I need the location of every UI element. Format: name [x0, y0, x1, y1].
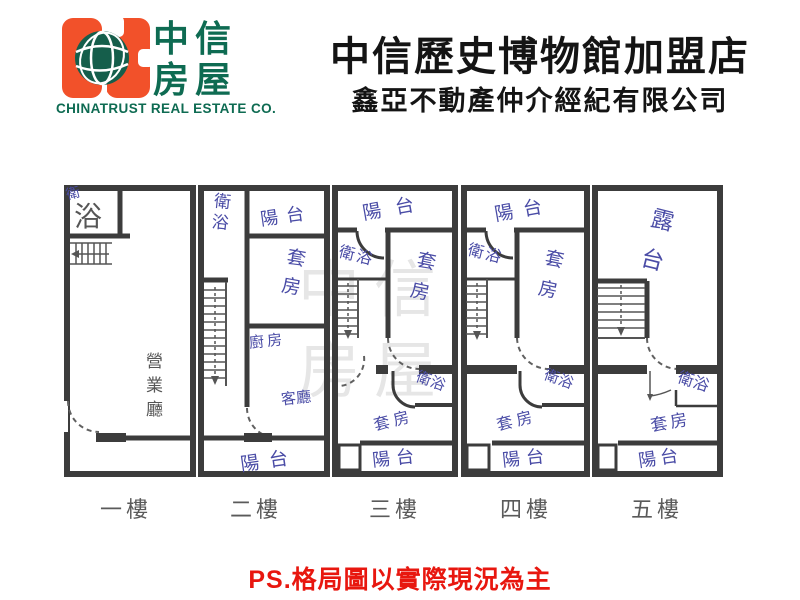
flyer-page: 中信 房屋 CHINATRUST REAL ESTATE CO. 中信歷史博物館… [0, 0, 800, 600]
room-label-hall-f1: 營業廳 [140, 352, 165, 436]
room-label-bath-f1: 浴 [74, 195, 102, 235]
room-label-balcony-bottom-f3: 陽台 [371, 442, 421, 473]
disclaimer-note: PS.格局圖以實際現況為主 [230, 560, 570, 596]
stairs-floor-2 [204, 282, 226, 386]
room-label-balcony-bottom-f4: 陽台 [501, 442, 551, 473]
floor-4-walls [464, 188, 587, 474]
stairs-floor-1 [70, 243, 112, 264]
stairs-floor-4 [466, 279, 487, 340]
room-label-living-f2: 客廳 [280, 385, 312, 409]
floor-name-5: 五樓 [617, 492, 697, 524]
floor-3-walls [335, 188, 455, 474]
room-label-kitchen-f2: 廚房 [248, 328, 286, 353]
floor-name-4: 四樓 [486, 492, 566, 524]
stairs-floor-3 [338, 279, 358, 339]
floor-name-3: 三樓 [355, 492, 435, 524]
floor-name-2: 二樓 [216, 492, 296, 524]
door-swing-floor-5 [647, 371, 671, 401]
floor-name-1: 一樓 [86, 492, 166, 524]
